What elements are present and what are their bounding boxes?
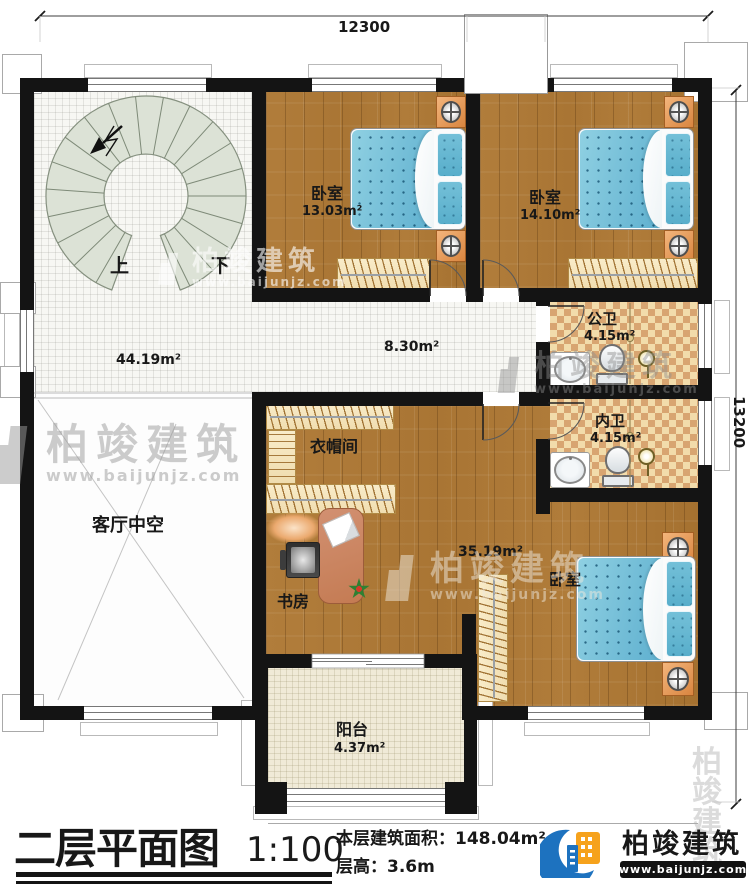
window: [698, 401, 712, 465]
inner-bath-area: 4.15m²: [590, 432, 641, 446]
flue-shaft: [464, 14, 548, 94]
titleblock-separator: [268, 823, 698, 824]
wardrobe: [478, 574, 508, 702]
window-sill: [84, 64, 212, 78]
window: [84, 706, 212, 720]
cloakroom-label: 衣帽间: [310, 438, 358, 456]
window-sill: [714, 397, 730, 471]
window: [698, 304, 712, 368]
title-underline: [16, 881, 332, 884]
bed: [576, 556, 696, 662]
bed: [578, 128, 694, 230]
desk-paper: [322, 512, 360, 548]
wall-corridor-south: [519, 392, 550, 406]
bed-pillows: [437, 133, 463, 225]
window-sill: [550, 64, 678, 78]
corridor-floor: [34, 302, 536, 392]
brand-logo-icon: [540, 828, 618, 878]
window-sill: [524, 722, 650, 736]
window: [88, 78, 206, 92]
wall-stair-bedroom1: [252, 92, 266, 302]
toilet: [602, 446, 634, 487]
plan-scale: 1:100: [246, 832, 344, 869]
shower-head: [638, 448, 655, 465]
floor-area-value: 148.04m²: [455, 829, 546, 849]
master-bedroom-area: 35.19m²: [458, 545, 523, 560]
living-void-floor: [34, 392, 252, 706]
balcony-area: 4.37m²: [334, 742, 385, 756]
dimension-right: 13200: [731, 396, 748, 448]
corridor-area: 8.30m²: [384, 340, 439, 355]
sink: [550, 352, 590, 387]
public-bath-area: 4.15m²: [584, 330, 635, 344]
hall-area: 44.19m²: [116, 353, 181, 368]
inner-bath-label: 内卫: [595, 413, 625, 430]
public-bath-label: 公卫: [587, 311, 617, 328]
floor-height-row: 层高：3.6m: [336, 858, 435, 877]
bedroom1-area: 13.03m²: [302, 205, 362, 219]
window-sill: [80, 722, 218, 736]
window: [528, 706, 644, 720]
living-void-label: 客厅中空: [92, 516, 164, 536]
wall-bath-west: [536, 439, 550, 514]
floor-area-label: 本层建筑面积：: [336, 829, 455, 849]
wardrobe: [337, 258, 430, 290]
cloakroom-shelf: [268, 430, 296, 484]
nightstand: [436, 230, 466, 262]
window-sill: [714, 300, 730, 374]
title-underline: [16, 872, 332, 877]
window: [312, 78, 436, 92]
plan-title: 二层平面图: [14, 826, 219, 872]
floor-height-label: 层高：: [336, 857, 387, 877]
bedroom1-label: 卧室: [311, 185, 343, 203]
wall-bath-west: [536, 302, 550, 306]
nightstand: [662, 662, 694, 696]
balcony-label: 阳台: [336, 721, 368, 739]
computer-monitor: [286, 542, 320, 578]
wall-corridor-south: [266, 392, 483, 406]
study-label: 书房: [277, 593, 309, 611]
window: [554, 78, 672, 92]
floor-height-value: 3.6m: [387, 857, 435, 877]
window: [20, 310, 34, 372]
wall-balcony-east: [464, 668, 477, 790]
wall-balcony-north: [252, 654, 312, 668]
bedroom2-label: 卧室: [529, 189, 561, 207]
corner-pier: [684, 42, 748, 102]
balcony-column: [445, 782, 477, 814]
bedroom2-area: 14.10m²: [520, 209, 580, 223]
wall-bath-south: [536, 488, 712, 502]
wall-bedroom1-bedroom2: [466, 92, 480, 302]
shower-head: [638, 350, 655, 367]
balcony-column: [255, 782, 287, 814]
wall-bedrooms-south: [466, 288, 483, 302]
bed-pillows: [666, 561, 693, 657]
balcony-railing-window: [287, 788, 445, 802]
floor-plan-canvas: 12300 13200 上 下 卧室 13.03m² 卧室 14.10m² 公卫…: [0, 0, 750, 890]
bed-pillows: [665, 133, 691, 225]
stair-down-label: 下: [211, 256, 230, 277]
brand-name: 柏竣建筑: [622, 830, 742, 860]
master-bedroom-label: 卧室: [549, 571, 581, 589]
wall-bath-divider: [550, 385, 698, 399]
brand-website: www.baijunjz.com: [620, 861, 746, 878]
nightstand: [664, 96, 694, 128]
study-rug: [266, 512, 322, 544]
toilet: [596, 344, 628, 385]
wall-right: [698, 78, 712, 720]
cloakroom-wardrobe: [266, 402, 394, 430]
sink: [550, 452, 590, 488]
dimension-top: 12300: [338, 19, 390, 36]
wall-balcony-north: [424, 654, 477, 668]
wardrobe: [568, 258, 698, 290]
window-sill: [308, 64, 442, 78]
wall-bedrooms-south: [519, 288, 712, 302]
stair-up-label: 上: [110, 256, 129, 277]
nightstand: [436, 96, 466, 128]
floor-area-row: 本层建筑面积：148.04m²: [336, 830, 546, 849]
bed: [350, 128, 466, 230]
wall-left: [20, 78, 34, 720]
wall-bedrooms-south: [252, 288, 430, 302]
wall-balcony-west: [255, 668, 268, 790]
